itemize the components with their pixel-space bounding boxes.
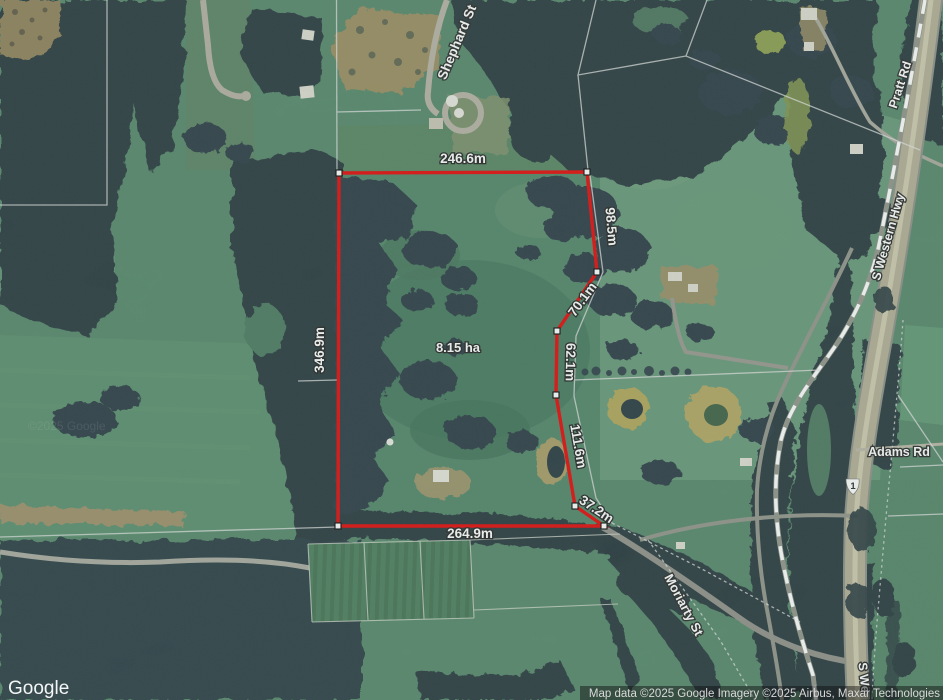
svg-text:Google: Google xyxy=(8,678,69,699)
svg-text:Map data ©2025 Google Imagery: Map data ©2025 Google Imagery ©2025 Airb… xyxy=(589,688,940,700)
